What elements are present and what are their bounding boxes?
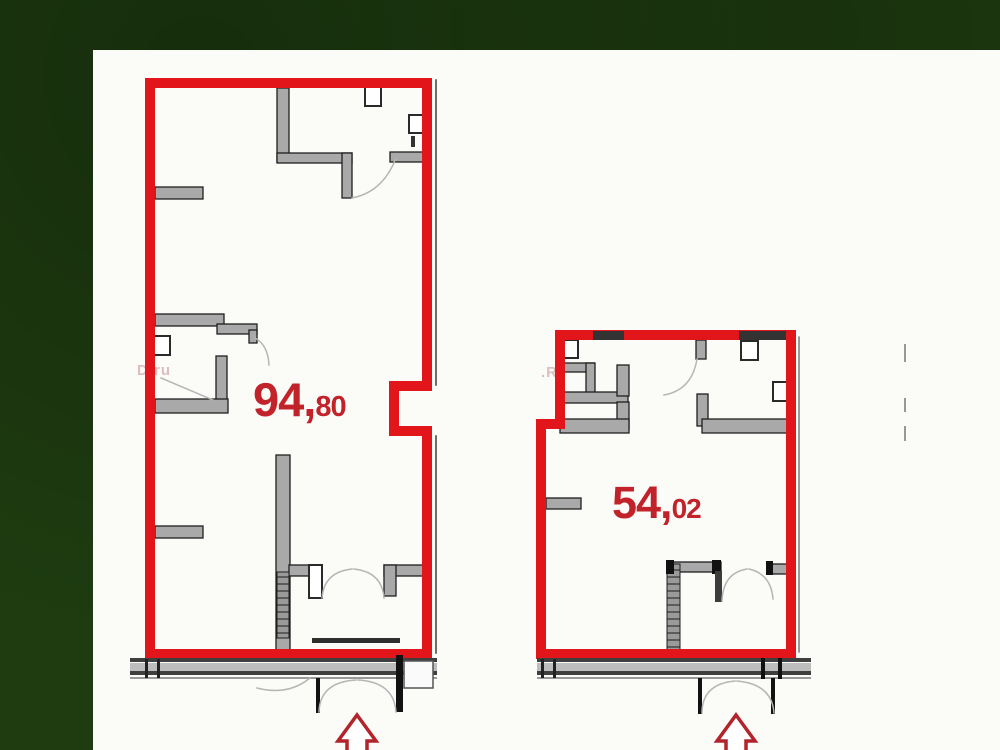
shaft-wall-hatched bbox=[667, 564, 680, 651]
slide-background: D.ru .R 94,80 54,02 bbox=[0, 0, 1000, 750]
wall bbox=[617, 365, 629, 396]
fixture-box bbox=[365, 87, 381, 106]
wall bbox=[702, 419, 788, 433]
entry-door-arcs bbox=[702, 681, 774, 713]
door-jamb bbox=[249, 330, 257, 343]
fixture-box bbox=[773, 382, 787, 401]
band-tick bbox=[778, 658, 782, 679]
band-line bbox=[537, 671, 811, 675]
door-arc bbox=[722, 569, 747, 601]
band-tick bbox=[761, 658, 765, 679]
fixture-box bbox=[563, 340, 578, 358]
band-line bbox=[537, 677, 811, 679]
door-jamb bbox=[698, 678, 702, 714]
door-arc bbox=[352, 158, 396, 198]
wall bbox=[277, 153, 352, 163]
wall-stub-dark bbox=[396, 655, 403, 712]
hinge-mark bbox=[411, 136, 415, 147]
fixture-box bbox=[153, 336, 170, 355]
wall bbox=[155, 399, 228, 413]
wall bbox=[155, 314, 224, 326]
door-arc bbox=[358, 680, 396, 712]
area-value-whole: 54, bbox=[612, 477, 672, 528]
band-tick bbox=[157, 659, 160, 678]
door-leaf bbox=[161, 378, 213, 400]
band-line bbox=[130, 658, 437, 662]
shaft-wall-hatched bbox=[277, 572, 289, 638]
floorplan-small bbox=[537, 331, 811, 750]
area-label-large: 94,80 bbox=[253, 376, 346, 423]
interior-walls bbox=[546, 340, 788, 574]
area-label-small: 54,02 bbox=[612, 480, 701, 525]
door-arc bbox=[737, 681, 774, 713]
wall bbox=[155, 187, 203, 199]
landing-box bbox=[404, 661, 433, 688]
wall bbox=[342, 153, 352, 198]
wall bbox=[277, 88, 289, 162]
wall bbox=[546, 498, 581, 509]
area-value-whole: 94, bbox=[253, 373, 315, 426]
band-line bbox=[537, 658, 811, 662]
entrance-arrow-icon bbox=[717, 715, 755, 750]
door-arc bbox=[322, 569, 352, 598]
door-arc bbox=[257, 678, 310, 690]
entrance-arrow-icon bbox=[338, 715, 376, 750]
door-arc bbox=[319, 680, 356, 712]
entry-door-arcs bbox=[257, 678, 396, 712]
door-jamb bbox=[309, 565, 322, 598]
wall bbox=[696, 340, 706, 359]
floorplans-drawing bbox=[0, 0, 1000, 750]
band-tick bbox=[541, 659, 544, 678]
fixture-box bbox=[741, 341, 758, 360]
band-tick bbox=[553, 659, 556, 678]
band-fill bbox=[130, 663, 437, 672]
wall-cap bbox=[766, 561, 773, 575]
window-mark bbox=[593, 331, 624, 340]
band-tick bbox=[145, 659, 148, 678]
band-fill bbox=[537, 663, 811, 672]
wall-cap bbox=[666, 560, 674, 574]
door-arc bbox=[702, 681, 735, 713]
door-arc bbox=[354, 569, 384, 598]
corridor-wall-band bbox=[130, 658, 437, 679]
door-jamb bbox=[384, 565, 396, 596]
area-value-fraction: 80 bbox=[315, 391, 345, 423]
door-jamb bbox=[715, 571, 722, 602]
corridor-wall-band bbox=[537, 658, 811, 679]
fixture-box bbox=[409, 115, 423, 133]
wall bbox=[216, 356, 227, 405]
band-line bbox=[130, 671, 437, 675]
wall bbox=[155, 526, 203, 538]
interior-walls bbox=[155, 88, 428, 652]
door-arc bbox=[664, 359, 697, 395]
wall bbox=[560, 419, 629, 433]
wall-thin bbox=[312, 638, 400, 643]
window-mark bbox=[739, 331, 786, 340]
area-value-fraction: 02 bbox=[672, 493, 701, 524]
band-line bbox=[130, 677, 437, 679]
